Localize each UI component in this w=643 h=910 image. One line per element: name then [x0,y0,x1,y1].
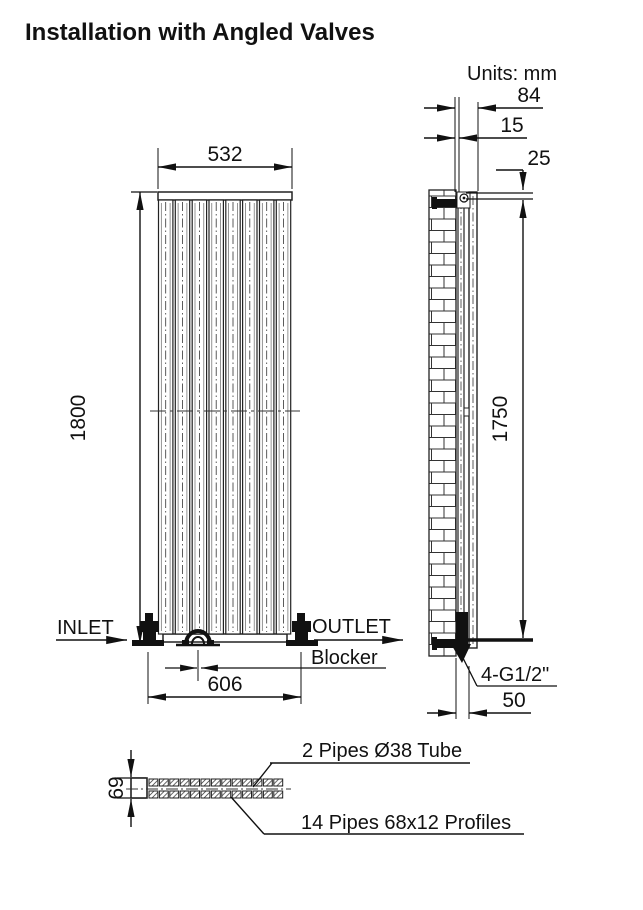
tube-callout: 2 Pipes Ø38 Tube [253,740,470,787]
side-wall-gap-dimension: 15 [424,114,527,138]
side-top-offset-dim-label: 25 [527,147,550,170]
front-height-dimension: 1800 [67,192,157,644]
side-span-dimension: 1750 [489,200,523,638]
side-top-offset-dimension: 25 [466,147,551,199]
connection-callout: 4-G1/2" [462,656,557,686]
front-width-dim-label: 532 [207,143,242,166]
tube-label: 2 Pipes Ø38 Tube [302,740,462,762]
front-radiator-footer [163,634,287,642]
profiles-label: 14 Pipes 68x12 Profiles [301,812,511,834]
side-wall-distance-dim-label: 50 [502,689,525,712]
bottom-depth-dim-label: 69 [105,776,128,799]
front-valve-spacing-dim-label: 606 [207,673,242,696]
front-view: 532 1800 INL [56,143,403,704]
units-label: Units: mm [467,63,557,85]
side-depth-dimension: 84 [424,84,543,108]
side-view: 84 15 25 1750 [424,84,557,719]
side-span-dim-label: 1750 [489,396,512,443]
front-valve-spacing-dimension: 606 [148,652,301,704]
blocker-label: Blocker [311,647,378,669]
blocker-callout: Blocker [165,647,386,681]
inlet-label: INLET [57,617,114,639]
profiles-callout: 14 Pipes 68x12 Profiles [231,797,524,834]
front-radiator-panels [159,200,291,634]
side-depth-dim-label: 84 [517,84,541,107]
front-height-dim-label: 1800 [67,395,90,442]
bottom-view: 69 2 Pipes Ø38 Tube 14 Pipes 68x12 Profi… [105,740,524,834]
front-radiator-header [158,192,292,200]
connection-label: 4-G1/2" [481,664,549,686]
wall-section [429,190,456,656]
front-width-dimension: 532 [158,143,292,189]
page-title: Installation with Angled Valves [25,19,375,46]
side-mid-connector [464,408,469,416]
technical-drawing: Installation with Angled Valves Units: m… [0,0,643,910]
section-end-cap [131,778,147,798]
section-profiles [149,779,283,798]
side-wall-gap-dim-label: 15 [500,114,523,137]
outlet-label: OUTLET [312,616,391,638]
